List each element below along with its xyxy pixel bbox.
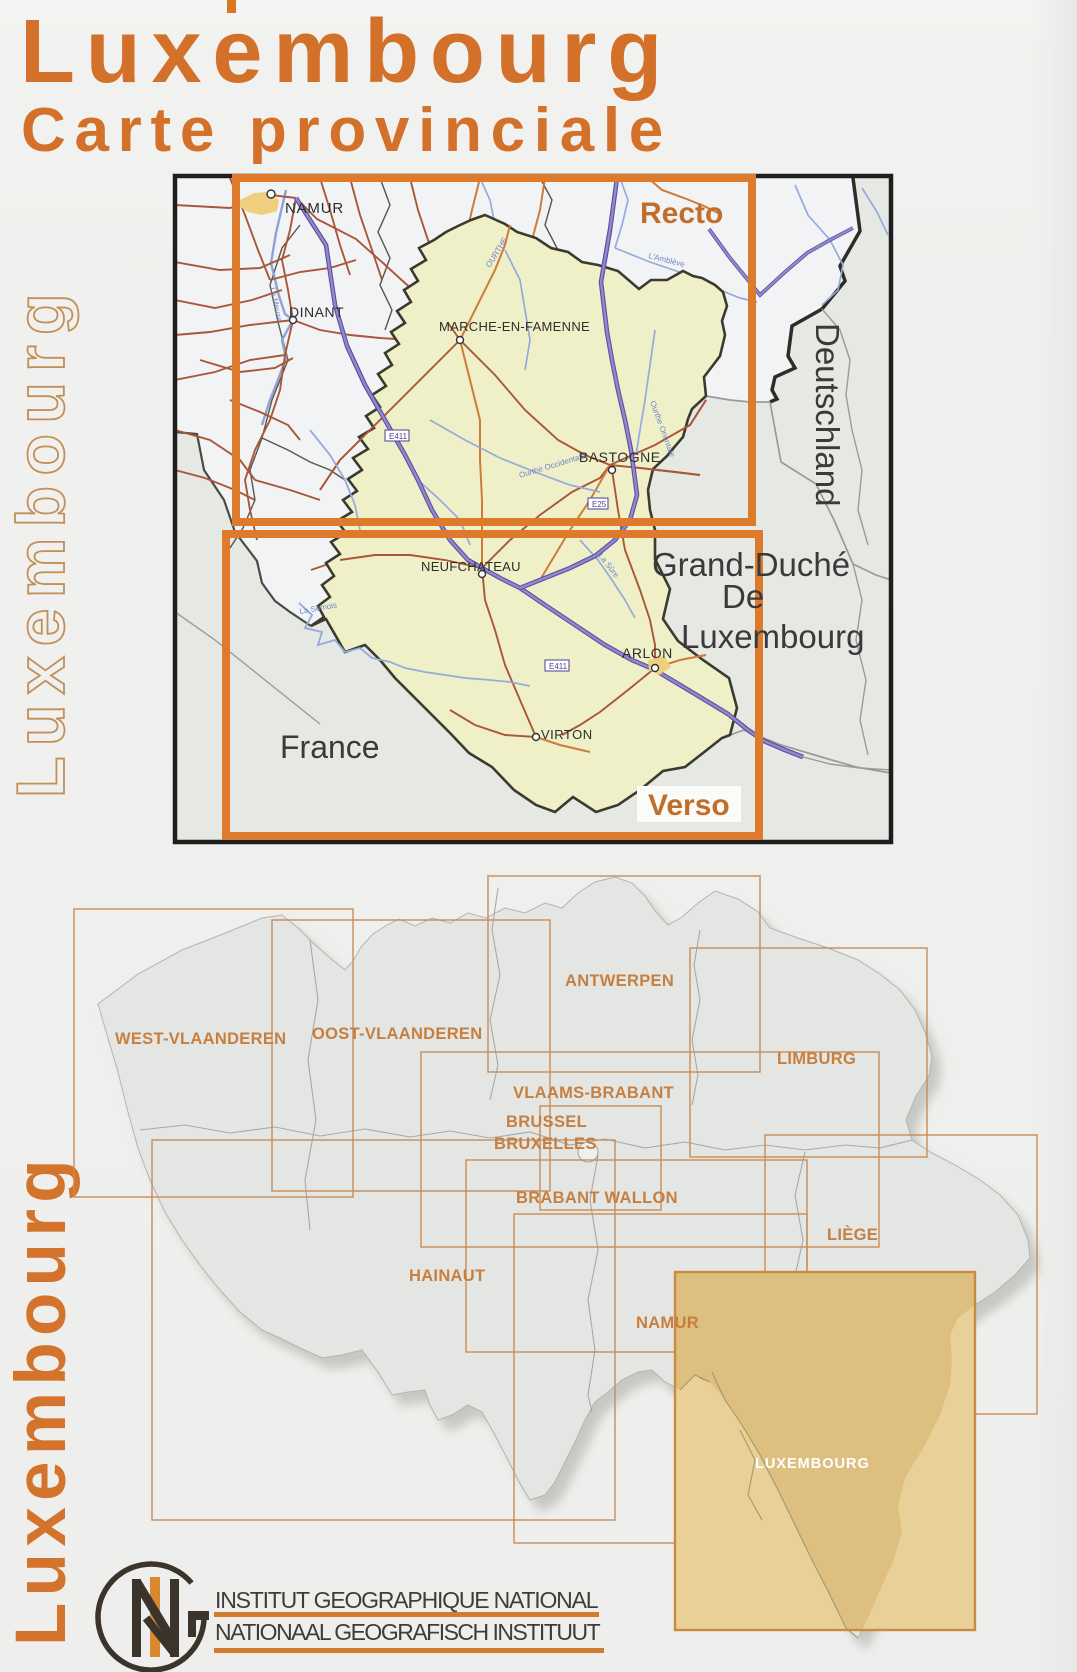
svg-text:NATIONAAL GEOGRAFISCH INSTITUU: NATIONAAL GEOGRAFISCH INSTITUUT: [215, 1619, 601, 1645]
svg-text:LIÈGE: LIÈGE: [827, 1225, 878, 1244]
svg-text:HAINAUT: HAINAUT: [409, 1267, 485, 1285]
svg-text:WEST-VLAANDEREN: WEST-VLAANDEREN: [115, 1030, 286, 1048]
svg-text:Luxembourg: Luxembourg: [681, 618, 864, 655]
svg-text:VLAAMS-BRABANT: VLAAMS-BRABANT: [513, 1084, 674, 1102]
svg-text:Deutschland: Deutschland: [809, 323, 846, 506]
svg-text:ANTWERPEN: ANTWERPEN: [565, 972, 674, 990]
svg-text:LIMBURG: LIMBURG: [777, 1050, 856, 1068]
svg-text:E411: E411: [549, 662, 568, 671]
svg-text:BRABANT WALLON: BRABANT WALLON: [516, 1189, 678, 1207]
svg-text:BASTOGNE: BASTOGNE: [579, 449, 661, 465]
svg-text:BRUSSEL: BRUSSEL: [506, 1113, 587, 1131]
svg-text:INSTITUT GEOGRAPHIQUE NATIONAL: INSTITUT GEOGRAPHIQUE NATIONAL: [215, 1587, 599, 1613]
svg-text:De: De: [722, 578, 764, 615]
svg-text:OOST-VLAANDEREN: OOST-VLAANDEREN: [312, 1025, 482, 1043]
svg-text:DINANT: DINANT: [289, 304, 344, 320]
svg-text:NEUFCHATEAU: NEUFCHATEAU: [421, 559, 521, 574]
svg-text:Recto: Recto: [640, 197, 723, 230]
svg-text:France: France: [280, 729, 380, 765]
svg-text:BRUXELLES: BRUXELLES: [494, 1135, 597, 1153]
svg-text:E25: E25: [592, 500, 607, 509]
svg-text:VIRTON: VIRTON: [541, 727, 593, 742]
svg-text:E411: E411: [389, 432, 408, 441]
svg-text:MARCHE-EN-FAMENNE: MARCHE-EN-FAMENNE: [439, 319, 590, 334]
svg-text:Verso: Verso: [648, 789, 730, 822]
svg-text:NAMUR: NAMUR: [636, 1314, 699, 1332]
svg-text:NAMUR: NAMUR: [285, 200, 344, 217]
svg-text:ARLON: ARLON: [622, 645, 673, 661]
svg-text:LUXEMBOURG: LUXEMBOURG: [755, 1456, 870, 1472]
